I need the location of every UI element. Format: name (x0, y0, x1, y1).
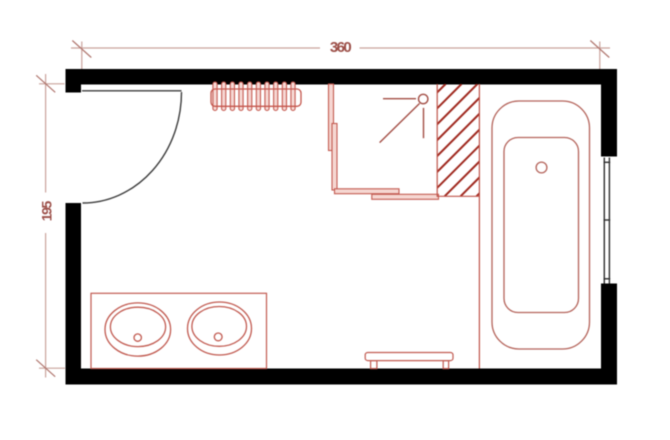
svg-text:360: 360 (330, 39, 351, 56)
svg-text:195: 195 (38, 201, 54, 222)
